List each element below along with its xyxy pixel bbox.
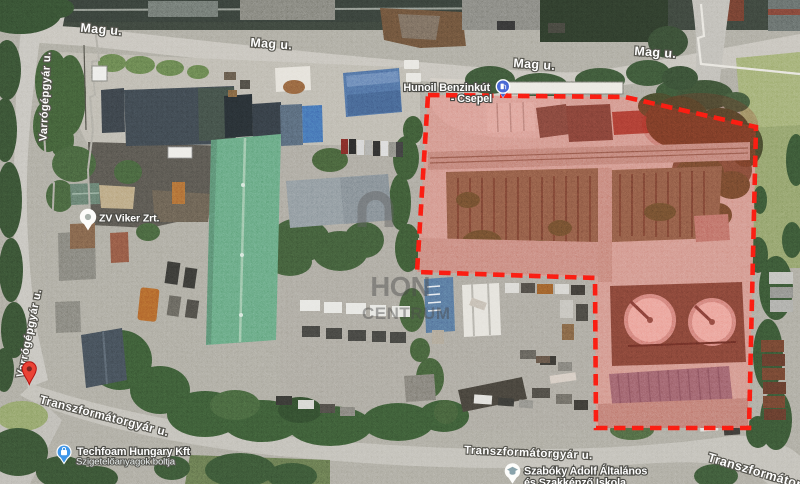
svg-text:- Csepel: - Csepel xyxy=(451,93,492,105)
svg-text:Mag u.: Mag u. xyxy=(513,56,556,73)
svg-text:Mag u.: Mag u. xyxy=(634,44,677,61)
svg-text:CENTRUM: CENTRUM xyxy=(362,304,451,323)
svg-text:HON: HON xyxy=(370,271,430,302)
svg-text:ZV Viker Zrt.: ZV Viker Zrt. xyxy=(99,213,160,225)
svg-text:Mag u.: Mag u. xyxy=(250,36,293,53)
svg-text:Szigetelőanyagok boltja: Szigetelőanyagok boltja xyxy=(76,457,176,468)
svg-text:és Szakképző Iskola: és Szakképző Iskola xyxy=(524,477,627,484)
svg-text:Szabóky Adolf Általános: Szabóky Adolf Általános xyxy=(524,465,647,478)
